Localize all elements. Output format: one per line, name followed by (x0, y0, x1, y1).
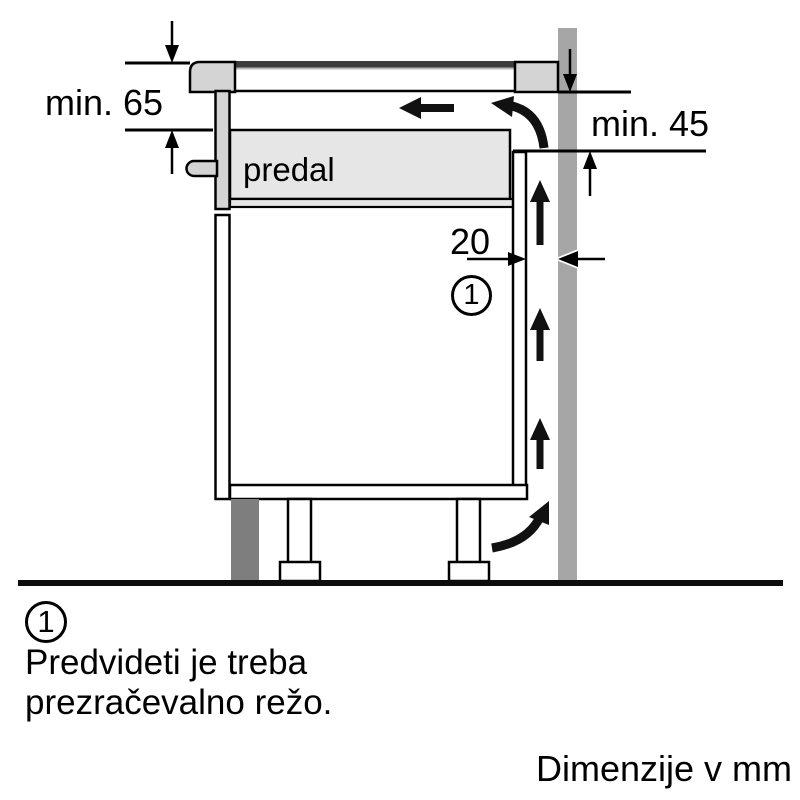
airflow-curve-bottom-icon (492, 501, 549, 548)
drawer-bottom-panel (230, 199, 514, 207)
callout-number: 1 (463, 279, 479, 312)
mounting-clip (187, 161, 217, 176)
cabinet-leg-right (449, 499, 489, 581)
drawer-label: predal (243, 152, 335, 189)
legend-callout-number: 1 (37, 604, 54, 640)
dim65-arrow-up-icon (165, 130, 179, 148)
cabinet-bottom-panel (230, 485, 527, 499)
dimension-label-min65: min. 65 (45, 83, 163, 123)
floor-line (18, 580, 783, 586)
dimension-label-min45: min. 45 (591, 104, 709, 144)
units-note: Dimenzije v mm (536, 749, 792, 789)
wall (558, 28, 577, 581)
hob-glass (227, 61, 527, 68)
legend-note-line-1: Predvideti je treba (25, 643, 307, 682)
cabinet-front-panel (216, 215, 230, 499)
legend-callout-circle-1: 1 (25, 601, 67, 643)
dim65-arrow-down-icon (165, 45, 179, 63)
airflow-left-arrow-icon (399, 97, 454, 119)
legend-note-line-2: prezračevalno režo. (25, 683, 332, 722)
hob-glass-highlight (227, 68, 527, 70)
hob-front-panel (216, 91, 230, 209)
airflow-up-arrow-icon (530, 180, 550, 245)
airflow-up-arrow-icon (530, 418, 550, 469)
callout-circle-1: 1 (451, 275, 492, 316)
installation-diagram: min. 65 min. 45 20 predal 1 1 Predvideti… (0, 0, 800, 800)
hob-left-trim (190, 62, 235, 92)
cabinet-leg-left (280, 499, 320, 581)
plinth (231, 499, 259, 581)
dim45-arrow-up-icon (583, 151, 597, 169)
cabinet-back-panel (513, 152, 526, 487)
dimension-label-gap20: 20 (450, 222, 490, 262)
hob-right-trim (515, 62, 558, 92)
airflow-up-arrow-icon (530, 308, 550, 361)
